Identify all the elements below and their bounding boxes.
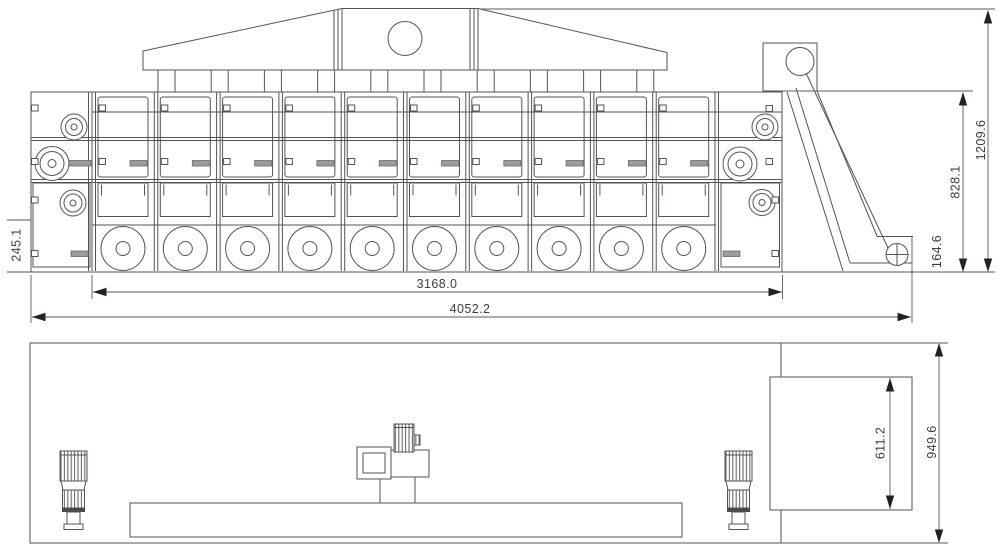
dimension-outlet-height: 164.6 [930, 235, 944, 268]
dimension-body-height: 828.1 [783, 91, 973, 272]
door-hinge [32, 159, 39, 165]
discharge-end [721, 106, 780, 268]
inclined-conveyor [763, 43, 913, 323]
dim-outlet-width: 611.2 [874, 427, 888, 459]
hood-duct [477, 71, 494, 93]
gearbox [391, 450, 429, 477]
dryer-module [217, 92, 273, 271]
hood-ducts [158, 71, 654, 93]
dim-outlet-height: 164.6 [930, 235, 944, 268]
door-hinge [32, 105, 39, 111]
plan-discharge-housing [770, 377, 912, 510]
dryer-module [92, 92, 148, 271]
dim-body-height: 828.1 [949, 165, 963, 198]
plan-view [30, 343, 912, 543]
door-hinge [32, 251, 39, 257]
dim-total-height: 1209.6 [974, 120, 988, 161]
dim-base-height: 245.1 [10, 228, 24, 261]
hood-duct [530, 71, 547, 93]
dryer-module [590, 92, 646, 271]
door-hinge [32, 197, 39, 203]
door-hinge [766, 106, 773, 112]
dryer-module [404, 92, 460, 271]
dryer-module [528, 92, 584, 271]
technical-drawing-page: 1209.6 828.1 164.6 245.1 3168.0 [0, 0, 1000, 554]
hood-duct [318, 71, 335, 93]
hood-duct [158, 71, 175, 93]
pulley [752, 114, 778, 140]
plan-belt-frame [130, 503, 682, 537]
motor-terminal [414, 435, 420, 445]
hood-duct [264, 71, 281, 93]
dryer-module [466, 92, 522, 271]
dryer-module [279, 92, 335, 271]
hood-outline [143, 9, 667, 71]
door-hinge [772, 197, 779, 203]
hood-duct [424, 71, 441, 93]
dim-overall-width: 949.6 [925, 425, 939, 458]
pulley [61, 114, 87, 140]
dryer-module [154, 92, 210, 271]
dimension-working-length: 3168.0 [92, 275, 783, 299]
junction-box [357, 447, 391, 479]
dimension-overall-length: 4052.2 [31, 275, 911, 323]
drive-motor [394, 424, 414, 452]
dim-working-length: 3168.0 [417, 277, 458, 291]
hood-duct [584, 71, 601, 93]
plan-gearmotor-right [725, 451, 752, 530]
dimension-base-height: 245.1 [7, 220, 31, 262]
hood-duct [211, 71, 228, 93]
door-hinge [772, 251, 779, 257]
plan-drive-assembly [357, 424, 429, 503]
dryer-technical-drawing: 1209.6 828.1 164.6 245.1 3168.0 [0, 0, 1000, 554]
side-view [7, 9, 995, 324]
door-hinge [766, 159, 773, 165]
dryer-module [653, 92, 709, 271]
module-row [92, 92, 709, 271]
hood-inspection-port [388, 22, 422, 56]
head-pulley [786, 48, 814, 76]
door-handle [723, 251, 740, 257]
hood-duct [371, 71, 388, 93]
dryer-module [341, 92, 397, 271]
plan-gearmotor-left [60, 451, 87, 530]
exhaust-hood [143, 9, 667, 71]
dim-overall-length: 4052.2 [450, 302, 491, 316]
hood-duct [637, 71, 654, 93]
infeed-end [32, 92, 92, 271]
door-handle [71, 251, 88, 257]
